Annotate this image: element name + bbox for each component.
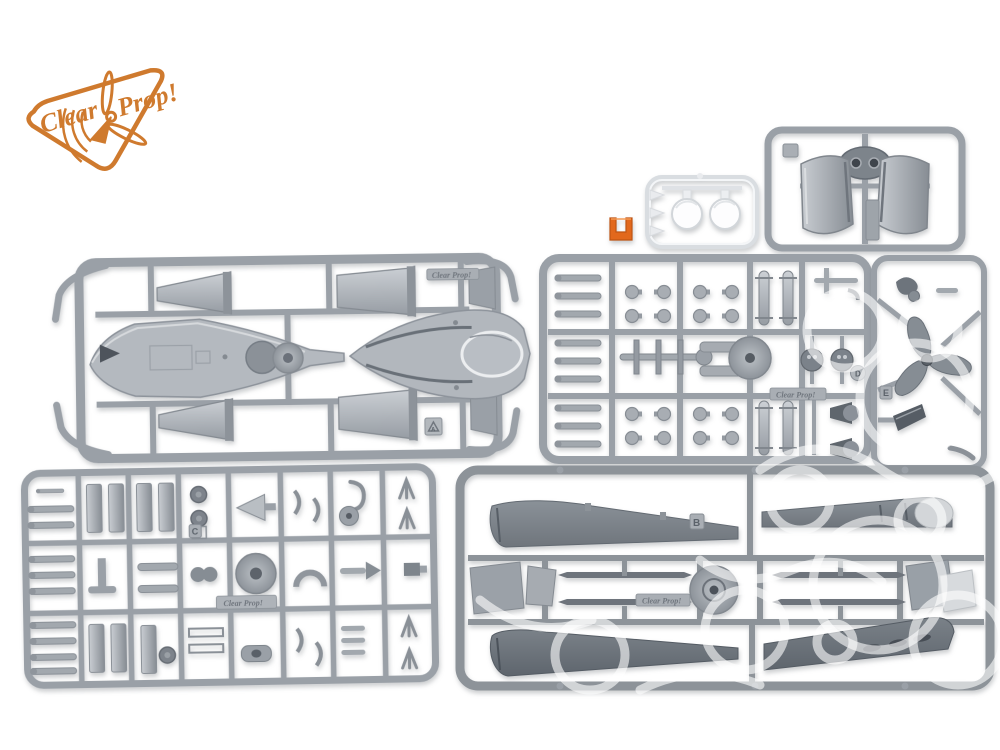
wing-half-lower-left bbox=[490, 630, 738, 676]
photo-canvas: Clear Prop! bbox=[0, 0, 1000, 750]
funnel-part bbox=[237, 494, 276, 521]
small-rack-part bbox=[620, 340, 712, 374]
row3-parts bbox=[189, 626, 366, 663]
sprue-f-cowlings bbox=[768, 127, 962, 252]
clear-sprue-prongs bbox=[650, 190, 664, 236]
product-photo: Clear Prop! bbox=[0, 0, 1000, 750]
sprue-b-tag-letter: B bbox=[693, 518, 700, 529]
small-blade-part bbox=[950, 448, 973, 458]
spinner-part bbox=[893, 404, 926, 431]
part-orange-bracket bbox=[610, 218, 632, 240]
molded-brand-tag: Clear Prop! bbox=[216, 595, 276, 609]
sprue-c-tag: C bbox=[189, 524, 201, 537]
sprue-c-tag-letter: C bbox=[192, 527, 199, 537]
molded-text: Clear Prop! bbox=[776, 391, 815, 400]
molded-text: Clear Prop! bbox=[432, 270, 471, 280]
molded-brand-tag: Clear Prop! bbox=[770, 388, 826, 400]
molded-text: Clear Prop! bbox=[642, 597, 681, 606]
cowling-shell-left bbox=[801, 156, 853, 234]
spar-strip-parts bbox=[470, 560, 906, 622]
hook-part bbox=[339, 482, 364, 526]
sprue-e-tag-letter: E bbox=[883, 388, 889, 398]
sprue-e-propeller: E bbox=[874, 258, 984, 468]
canopy-part-left bbox=[672, 190, 702, 229]
molded-brand-tag: Clear Prop! bbox=[427, 268, 479, 280]
large-wheel-part bbox=[729, 337, 771, 379]
row2-parts bbox=[88, 551, 428, 597]
sprue-a-fuselages: Clear Prop! A bbox=[55, 257, 532, 460]
pin-strip-parts bbox=[555, 275, 602, 448]
sprue-b-tag: B bbox=[690, 514, 704, 529]
canopy-part-right bbox=[710, 190, 740, 229]
sprue-c-details: C Clear Prop! bbox=[24, 466, 436, 685]
cowling-shell-right bbox=[877, 156, 929, 234]
hub-disc-part bbox=[273, 343, 303, 373]
sprue-clear-canopies bbox=[648, 173, 756, 246]
fuselage-half-bottom-view bbox=[89, 317, 344, 399]
tiny-pin-parts bbox=[27, 488, 77, 675]
fuselage-half-top-view bbox=[349, 309, 530, 400]
molded-brand-tag: Clear Prop! bbox=[636, 594, 690, 606]
molded-text: Clear Prop! bbox=[223, 598, 262, 608]
sprue-e-tag: E bbox=[880, 386, 892, 399]
sprue-a-tag: A bbox=[425, 418, 442, 435]
brand-logo: Clear Prop! bbox=[27, 69, 184, 171]
sprue-a-tag-letter: A bbox=[431, 427, 436, 433]
logo-text-right: Prop! bbox=[113, 77, 182, 122]
